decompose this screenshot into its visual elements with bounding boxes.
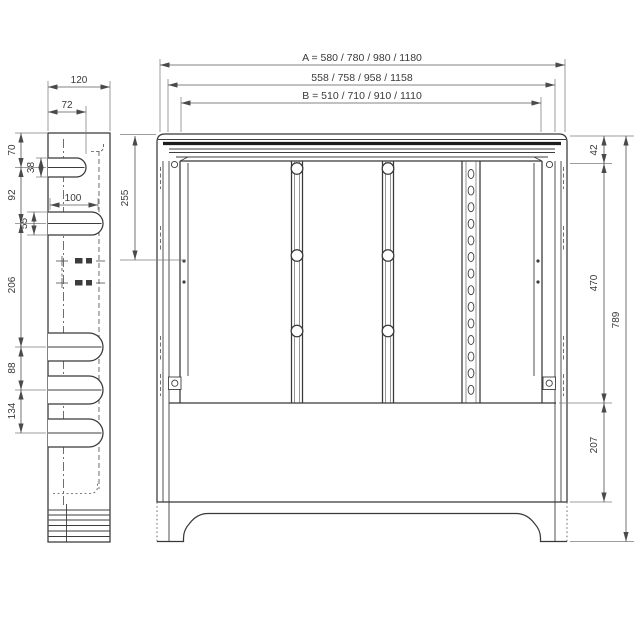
front-top-band-label: 42 [589, 144, 600, 156]
front-view [157, 134, 567, 542]
mounting-slot-1 [48, 158, 86, 177]
front-inner-width-label: B = 510 / 710 / 910 / 1110 [302, 90, 422, 102]
side-slot4-to-slot5-label: 134 [7, 402, 18, 419]
technical-drawing: 120 72 100 70 38 92 55 206 88 134 [0, 0, 640, 640]
mounting-slot-4 [48, 376, 103, 404]
side-slot2-to-slot3-label: 206 [7, 276, 18, 293]
front-overall-width-label: A = 580 / 780 / 980 / 1180 [302, 52, 422, 64]
mounting-slot-3 [48, 333, 103, 361]
cabinet-outline [157, 134, 567, 502]
front-base-panel-label: 207 [589, 436, 600, 453]
screw-hole-bottom-left [172, 380, 178, 386]
side-slot1-width-label: 38 [26, 162, 37, 174]
side-width-label: 120 [71, 75, 88, 86]
screw-hole-top-right [546, 161, 552, 167]
front-bracket-hole-offset-label: 255 [120, 189, 131, 206]
front-rail-zone-label: 470 [589, 274, 600, 291]
side-slot3-to-slot4-label: 88 [7, 362, 18, 374]
side-slot1-to-slot2-label: 92 [7, 189, 18, 201]
screw-hole-bottom-right [546, 380, 552, 386]
side-slot2-width-label: 55 [19, 218, 30, 230]
mounting-slot-5 [48, 419, 103, 447]
side-slot2-length-label: 100 [65, 193, 82, 204]
front-frame-width-label: 558 / 758 / 958 / 1158 [311, 72, 413, 84]
side-slot-offset-label: 72 [61, 100, 73, 111]
front-overall-height-label: 789 [611, 311, 622, 328]
screw-hole-top-left [171, 161, 177, 167]
side-top-to-slot1-label: 70 [7, 144, 18, 156]
mounting-slot-2 [48, 212, 103, 235]
